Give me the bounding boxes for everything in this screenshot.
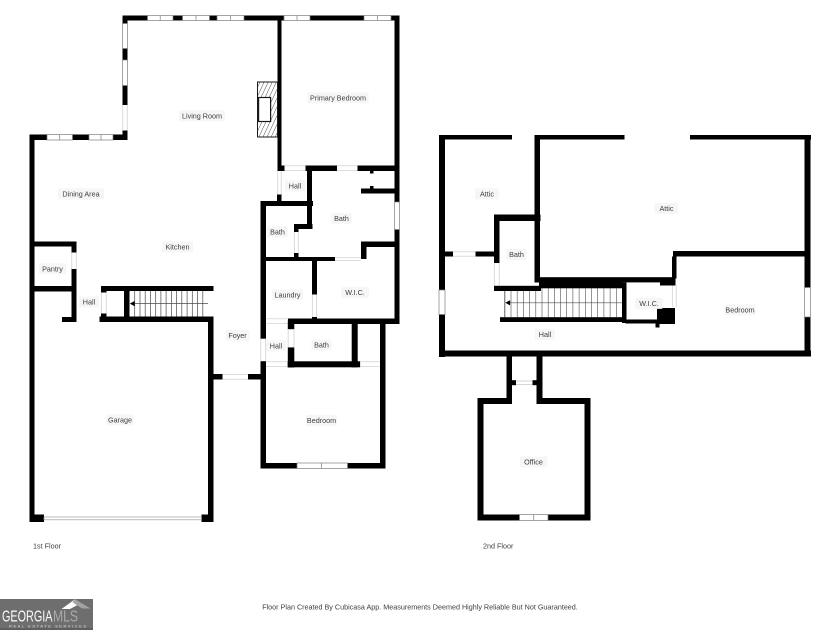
svg-text:Hall: Hall [539, 330, 552, 339]
svg-text:Living Room: Living Room [182, 112, 222, 121]
svg-text:Office: Office [524, 458, 543, 467]
svg-text:Attic: Attic [480, 190, 494, 199]
svg-text:Laundry: Laundry [275, 291, 301, 300]
svg-text:Attic: Attic [660, 204, 674, 213]
svg-text:Hall: Hall [270, 342, 283, 351]
svg-text:Dining Area: Dining Area [62, 190, 99, 199]
svg-text:Bedroom: Bedroom [307, 416, 336, 425]
svg-text:Garage: Garage [108, 416, 132, 425]
svg-text:Primary Bedroom: Primary Bedroom [310, 94, 366, 103]
svg-text:Hall: Hall [289, 182, 302, 191]
svg-text:1st Floor: 1st Floor [33, 542, 62, 551]
svg-text:Bedroom: Bedroom [725, 306, 754, 315]
svg-text:Foyer: Foyer [228, 331, 247, 340]
svg-text:W.I.C.: W.I.C. [345, 288, 365, 297]
svg-text:Kitchen: Kitchen [166, 243, 190, 252]
svg-text:Hall: Hall [83, 298, 96, 307]
svg-text:Bath: Bath [509, 250, 524, 259]
svg-text:Floor Plan Created By Cubicasa: Floor Plan Created By Cubicasa App. Meas… [262, 603, 578, 612]
svg-text:W.I.C.: W.I.C. [639, 299, 659, 308]
svg-text:Bath: Bath [314, 341, 329, 350]
svg-text:Pantry: Pantry [42, 265, 63, 274]
svg-text:2nd Floor: 2nd Floor [483, 542, 514, 551]
svg-text:Bath: Bath [334, 214, 349, 223]
svg-text:Bath: Bath [270, 228, 285, 237]
svg-text:REAL ESTATE SERVICES: REAL ESTATE SERVICES [9, 624, 88, 629]
